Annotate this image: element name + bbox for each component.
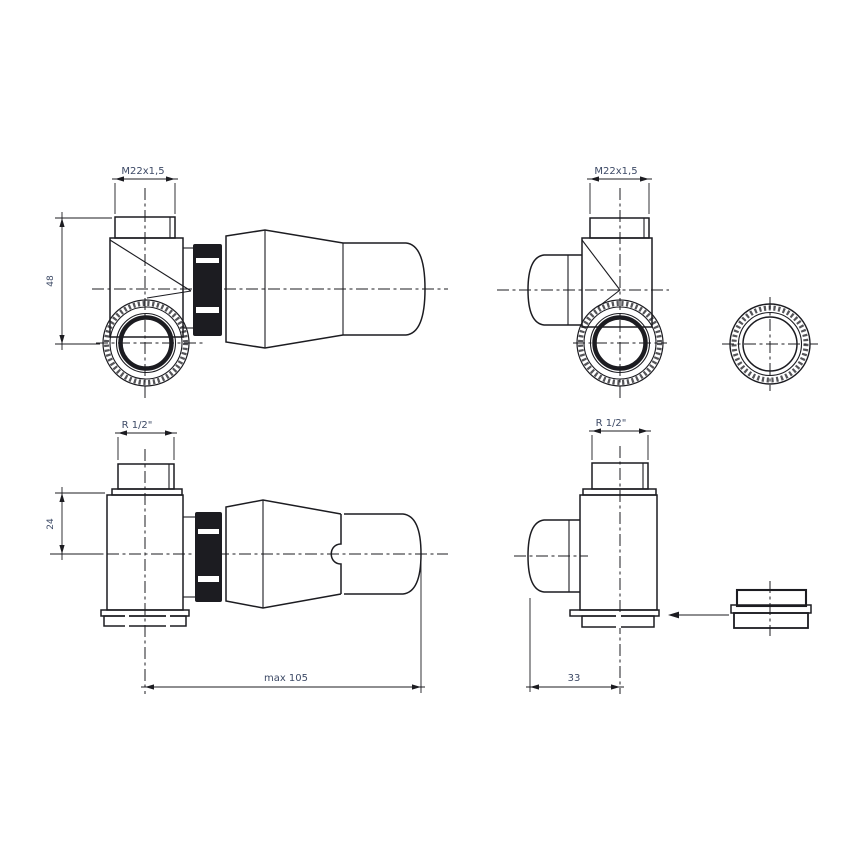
- dim-arrow: [592, 428, 601, 433]
- dim-arrow: [530, 684, 539, 689]
- dim-label-r-half-left: R 1/2": [122, 420, 153, 431]
- mounted-nut: [570, 610, 659, 628]
- dim-arrow: [118, 430, 127, 435]
- thread-stub: [118, 464, 174, 489]
- view-valve-with-head-side: R 1/2" 24: [46, 420, 448, 694]
- dim-arrow: [640, 176, 649, 181]
- dim-label-max105: max 105: [264, 673, 308, 684]
- dim-arrow: [611, 684, 620, 689]
- dim-arrow: [145, 684, 154, 689]
- dim-arrow: [59, 493, 64, 502]
- body-diagonal: [147, 291, 191, 298]
- dim-label-m22-right: M22x1,5: [594, 166, 637, 177]
- body-diagonal: [582, 240, 620, 290]
- dim-arrow: [166, 176, 175, 181]
- union-nut-front: [722, 297, 818, 391]
- view-valve-body-front: M22x1,5: [497, 166, 669, 399]
- view-valve-with-head-front: M22x1,5 48: [46, 166, 448, 399]
- dim-arrow: [59, 218, 64, 227]
- dim-arrow: [165, 430, 174, 435]
- union-nut-side: [731, 581, 811, 636]
- dim-arrow: [59, 545, 64, 554]
- valve-technical-drawing: M22x1,5 48: [0, 0, 868, 868]
- dimension-r-half-left: R 1/2": [115, 420, 177, 460]
- body-diagonal: [110, 240, 191, 291]
- dimension-48: 48: [46, 212, 112, 350]
- valve-body: [580, 495, 657, 610]
- view-valve-body-side: R 1/2" 33: [514, 418, 659, 694]
- dimension-33: 33: [526, 598, 624, 692]
- dim-arrow: [639, 428, 648, 433]
- dim-label-24: 24: [46, 518, 56, 530]
- dim-arrow: [115, 176, 124, 181]
- knurled-collar: [195, 512, 222, 602]
- valve-body: [110, 238, 183, 337]
- dim-label-r-half-right: R 1/2": [596, 418, 627, 429]
- knurled-collar: [193, 244, 222, 336]
- dim-label-48: 48: [46, 275, 56, 287]
- dim-label-m22-left: M22x1,5: [121, 166, 164, 177]
- body-collar: [112, 489, 182, 495]
- dim-label-33: 33: [568, 673, 581, 684]
- dim-arrow: [59, 335, 64, 344]
- dimension-24: 24: [46, 487, 105, 560]
- dim-arrow: [590, 176, 599, 181]
- assembly-arrow: [668, 612, 729, 619]
- technical-drawing-page: M22x1,5 48: [0, 0, 868, 868]
- dim-arrow: [412, 684, 421, 689]
